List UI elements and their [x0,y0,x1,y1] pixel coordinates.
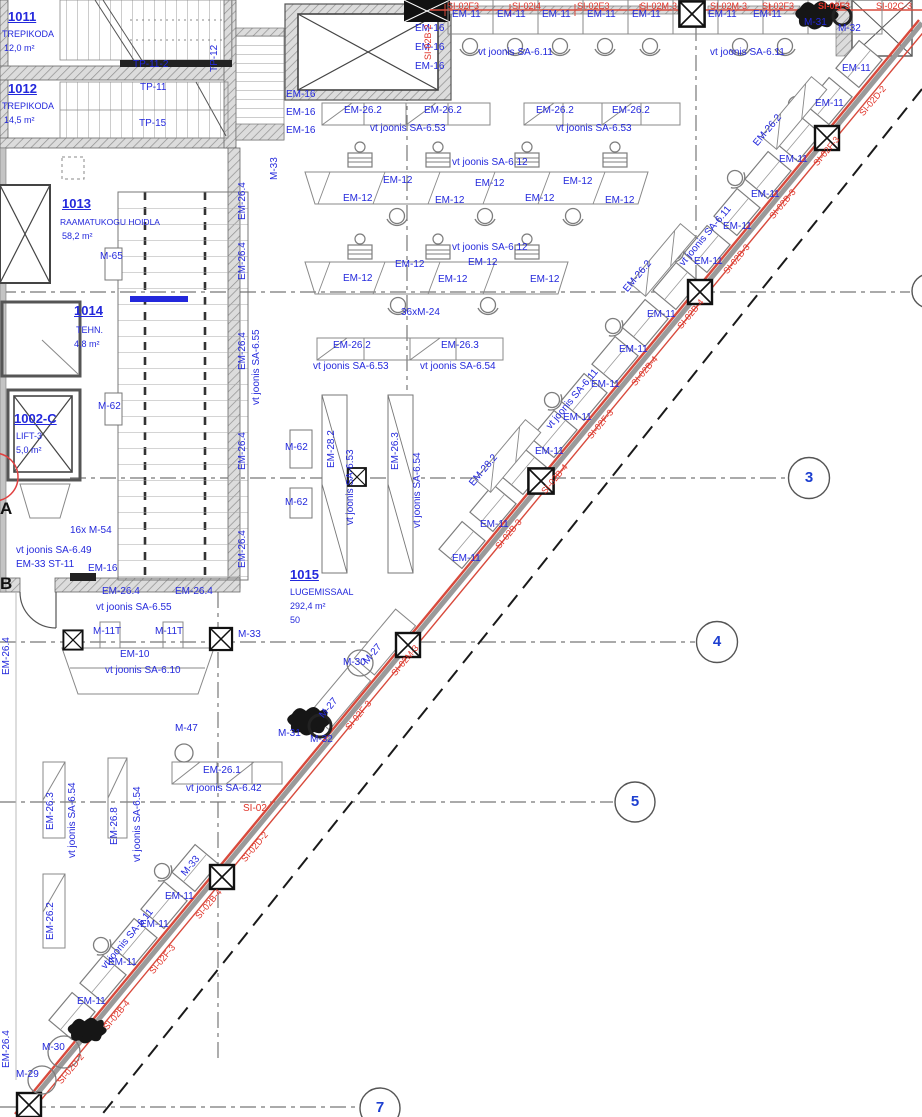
floor-plan-drawing [0,0,922,1117]
floor-plan: 1011TREPIKODA12,0 m²1012TREPIKODA14,5 m²… [0,0,922,1117]
em12-desk-rows [305,142,648,314]
grid-circles [360,274,922,1117]
